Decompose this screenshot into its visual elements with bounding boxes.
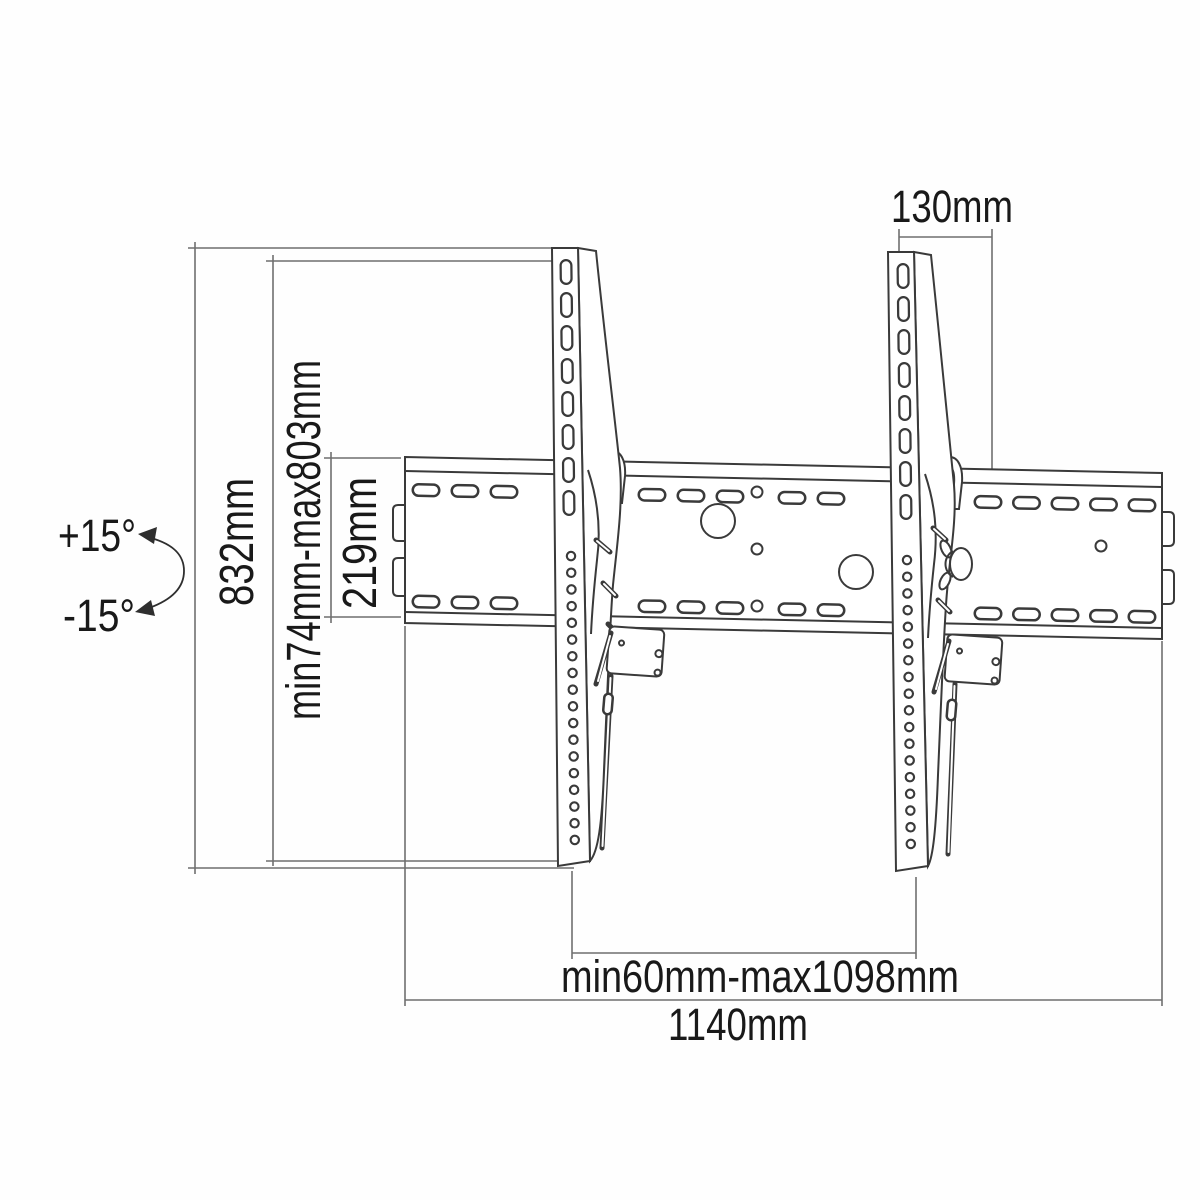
rail-small-hole: [752, 601, 763, 612]
rail-small-hole: [752, 487, 763, 498]
wall-mount-dimension-diagram: +15° -15° 130mm 832mm min74mm-max803mm 2…: [0, 0, 1200, 1200]
dimension-label-130mm: 130mm: [891, 181, 1013, 232]
right-bracket-rod: [948, 684, 955, 854]
tilt-arrow-icon: [135, 527, 184, 616]
dimension-label-219mm: 219mm: [334, 477, 387, 609]
dimension-label-min60-max1098: min60mm-max1098mm: [561, 951, 959, 1002]
dimension-1140: [405, 626, 1162, 1006]
dimension-min60-max1098: [572, 871, 916, 959]
dimension-label-832mm: 832mm: [211, 478, 264, 606]
rail-left-clip: [393, 558, 405, 596]
left-bracket-latch: [606, 626, 664, 677]
rail-small-hole: [752, 544, 763, 555]
rail-large-hole: [701, 504, 735, 538]
rail-right-clip: [1162, 512, 1174, 546]
tilt-indicator: +15° -15°: [58, 510, 184, 641]
tilt-down-label: -15°: [63, 590, 135, 641]
wall-rail: [393, 457, 1174, 639]
diagram-canvas: +15° -15° 130mm 832mm min74mm-max803mm 2…: [0, 0, 1200, 1200]
right-bracket-latch: [944, 634, 1002, 685]
tilt-up-label: +15°: [58, 510, 136, 561]
rail-large-hole: [839, 555, 873, 589]
rail-left-clip: [393, 505, 405, 541]
dimension-label-1140mm: 1140mm: [668, 999, 808, 1050]
rail-small-hole: [1096, 541, 1107, 552]
rail-right-clip: [1162, 570, 1174, 604]
dimension-label-min74-max803: min74mm-max803mm: [278, 360, 331, 720]
